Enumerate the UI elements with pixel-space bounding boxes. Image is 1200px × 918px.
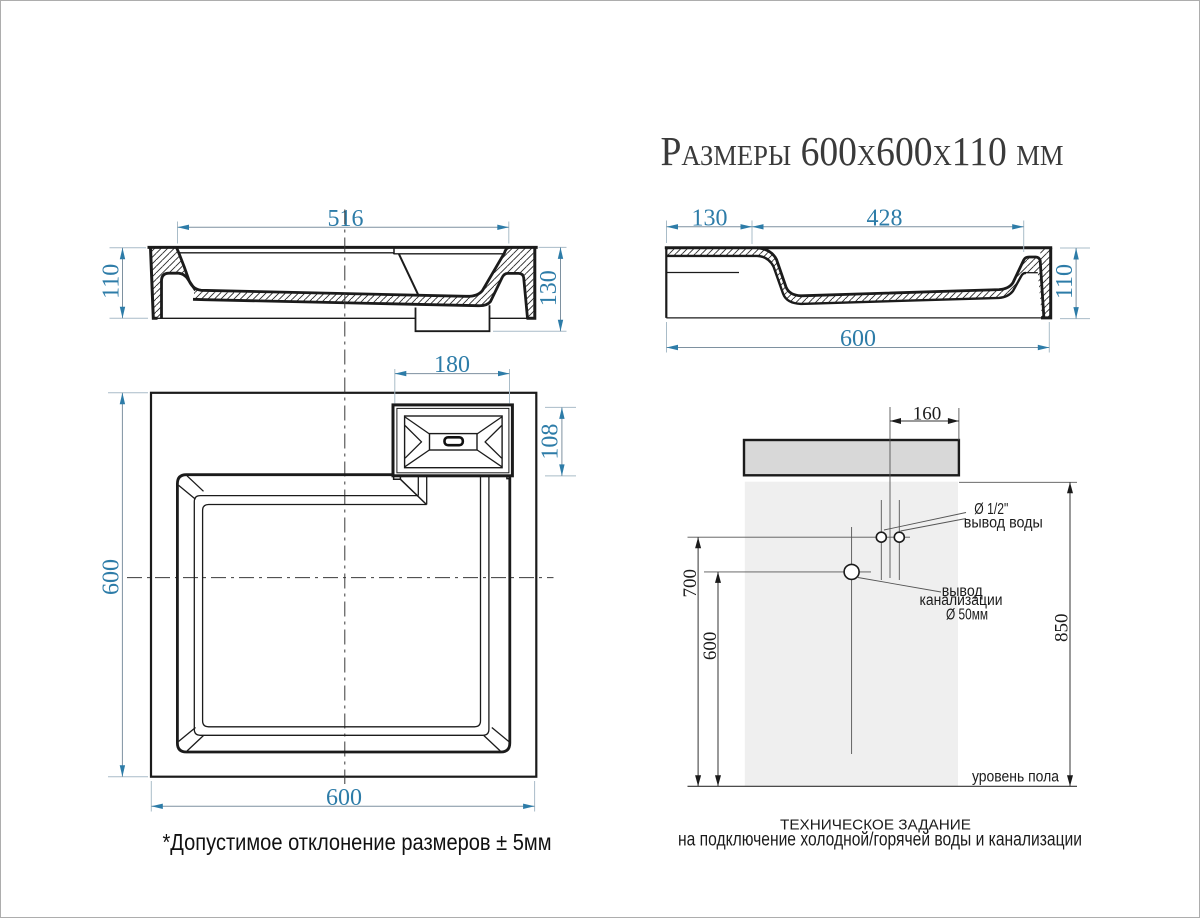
svg-text:160: 160 <box>913 403 942 424</box>
svg-text:130: 130 <box>536 270 562 306</box>
svg-text:Размеры 600х600х110 мм: Размеры 600х600х110 мм <box>661 128 1064 174</box>
svg-text:600: 600 <box>700 632 721 661</box>
svg-text:вывод воды: вывод воды <box>964 515 1043 532</box>
svg-text:600: 600 <box>326 785 362 811</box>
svg-text:516: 516 <box>328 206 364 232</box>
svg-text:850: 850 <box>1051 613 1072 642</box>
svg-text:428: 428 <box>867 205 903 231</box>
svg-text:110: 110 <box>98 264 124 299</box>
svg-text:180: 180 <box>434 352 470 378</box>
svg-text:уровень пола: уровень пола <box>972 769 1059 786</box>
svg-text:600: 600 <box>840 326 876 352</box>
svg-text:600: 600 <box>99 559 125 595</box>
svg-text:*Допустимое отклонение размеро: *Допустимое отклонение размеров ± 5мм <box>163 829 552 855</box>
svg-text:110: 110 <box>1052 264 1078 299</box>
svg-text:Ø 50мм: Ø 50мм <box>946 607 988 624</box>
svg-text:на подключение холодной/горяче: на подключение холодной/горячей воды и к… <box>678 830 1082 851</box>
svg-text:700: 700 <box>680 569 701 598</box>
svg-text:130: 130 <box>692 205 728 231</box>
svg-text:108: 108 <box>538 424 564 460</box>
